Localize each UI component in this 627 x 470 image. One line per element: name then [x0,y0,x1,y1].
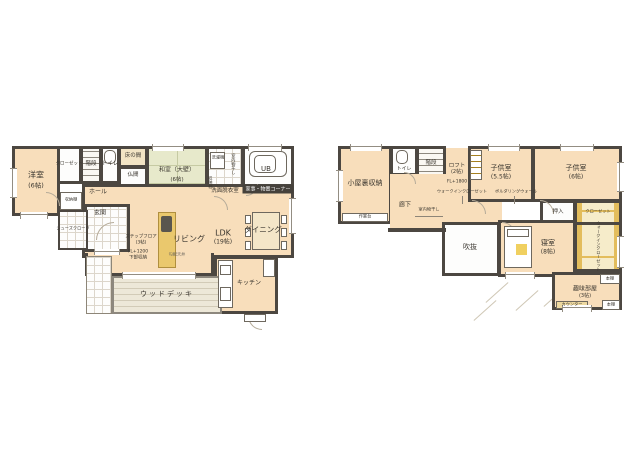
label-stairs-1f: 階段 [85,161,96,167]
floorplan-canvas: 洋室 (6帖) クローゼット 階段 トイレ 床の間 仏間 和室（大壁） (6帖)… [0,0,627,470]
label-washroom: 洗面脱衣室 [211,188,239,194]
label-storage-shelf-washroom: 収納棚 [208,176,213,189]
dining-chair [245,241,251,250]
label-dining: ダイニング [244,226,282,234]
label-closet-2f: クローゼット [585,210,610,215]
kitchen-stove [220,287,231,301]
deck-sliding-door [122,272,196,279]
roof-hatch [486,282,509,303]
label-wic-note: ウォークインクローゼット [437,190,487,195]
label-walk-in-closet: ウォークインクローゼット [596,221,601,271]
label-hall: ホール [89,190,107,197]
label-loft-size: (2帖) [451,170,463,176]
entrance-porch [86,256,112,314]
label-washer: 洗濯機 [212,156,225,161]
label-corridor: 廊下 [399,203,411,210]
label-loft: ロフト [449,163,466,169]
toilet-fixture-2f [396,150,408,164]
bed-pillow [507,229,529,237]
window [20,212,48,219]
label-void: 吹抜 [463,244,477,252]
label-child-1: 子供室 [491,165,512,173]
label-hobby-counter: カウンター [562,303,583,308]
label-step-floor-level: FL+1200 [128,249,148,254]
window [248,144,282,151]
label-closet-1f: クローゼット [56,161,83,166]
window [617,236,624,268]
label-bedroom-size: (8帖) [541,250,556,257]
laundry-pole-line [415,216,443,217]
label-housework-storage-corner: 家事・物置コーナー [242,185,293,194]
kitchen-sink [220,265,231,275]
label-bedroom: 寝室 [541,240,555,248]
label-child-2-size: (6帖) [569,175,584,182]
label-western-bedroom: 洋室 [28,172,44,181]
label-wood-deck: ウッドデッキ [140,291,194,299]
label-hobby-size: (3帖) [579,294,591,300]
label-living: リビング [173,236,205,245]
label-ldk: LDK [215,230,231,239]
label-tokonoma: 床の間 [125,153,142,159]
label-unit-bath: UB [261,166,271,174]
window [560,144,594,151]
back-door-step [244,314,266,322]
kitchen-pantry-shelf [263,259,275,277]
label-toilet-1f: トイレ [102,161,119,167]
label-toilet-2f: トイレ [396,167,411,173]
dining-chair [245,215,251,224]
window [336,170,343,202]
label-child-1-size: (5.5帖) [491,175,511,182]
label-indoor-drying-1f: 室内物干し [231,154,236,175]
loft-ladder [470,150,482,180]
label-child-2: 子供室 [566,165,587,173]
label-ldk-size: (19帖) [214,240,232,247]
label-butsuma: 仏間 [127,172,138,178]
leader-line [514,196,515,204]
window [10,168,17,198]
roof-hatch [516,290,539,311]
label-bookshelf-bottom: 本棚 [607,303,615,308]
label-japanese-room-size: (6帖) [170,177,183,183]
window [505,272,535,279]
label-step-floor-storage: 下部収納 [129,255,147,260]
step-floor-decor [161,216,172,232]
window [289,198,296,234]
label-step-floor-size: (3帖) [136,240,147,245]
label-oshiire: 押入 [552,209,563,215]
label-kitchen: キッチン [237,281,261,288]
label-sloped-ceiling: 勾配天井 [169,253,186,258]
label-loft-level: FL+1800 [447,179,467,184]
label-storage-shelf-hall: 収納棚 [65,198,78,203]
label-bookshelf-top: 本棚 [606,277,614,282]
window [617,162,624,192]
window [488,144,520,151]
leader-line [462,196,463,204]
label-shoes-cloak: シューズクローク [56,227,89,232]
bed-blanket [516,244,527,255]
label-bouldering-wall: ボルダリングウォール [495,190,537,195]
label-indoor-drying-2f: 室内物干し [419,208,440,213]
label-step-floor: ステップフロア [125,234,157,239]
label-entrance: 玄関 [94,211,106,218]
dining-chair [281,215,287,224]
label-workbench: 作業台 [359,215,372,220]
label-attic-storage: 小屋裏収納 [348,180,383,188]
window [350,144,382,151]
roof-hatch [474,300,497,321]
wall-segment [388,228,446,232]
label-stairs-2f: 階段 [425,160,436,166]
front-door [94,249,120,255]
dining-chair [281,241,287,250]
label-japanese-room: 和室（大壁） [159,168,195,175]
label-western-bedroom-size: (6帖) [28,182,44,189]
window [152,144,184,151]
